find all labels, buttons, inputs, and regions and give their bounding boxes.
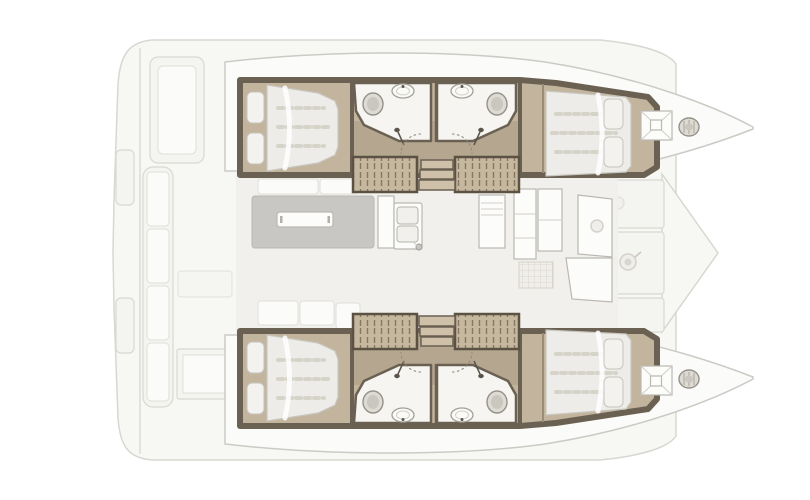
sliding-door-panel: [566, 258, 612, 302]
bench-cushion: [147, 343, 169, 401]
saloon-table: [252, 196, 374, 248]
saloon-bench-cushion: [258, 179, 318, 194]
table-leaf-latch: [328, 216, 331, 223]
saloon-sofa-cushion: [300, 301, 334, 325]
lower-hull-interior: [240, 314, 699, 426]
saloon-sofa-cushion: [258, 301, 298, 325]
catamaran-floor-plan: [0, 0, 810, 500]
transom-step: [116, 150, 134, 205]
entry-door-mat: [519, 262, 553, 288]
aft-storage-lid: [158, 66, 196, 154]
saloon: [236, 172, 618, 334]
door-handle-icon: [591, 220, 603, 232]
transom-step: [116, 298, 134, 353]
table-leaf-latch: [280, 216, 283, 223]
deck-hatch-lid: [183, 355, 227, 393]
bench-cushion: [147, 286, 169, 340]
bench-cushion: [147, 172, 169, 226]
sink-basin: [397, 207, 418, 224]
galley-column: [514, 189, 536, 259]
sink-basin: [397, 226, 418, 242]
cockpit-side-panel: [178, 271, 232, 297]
bench-cushion: [147, 229, 169, 283]
floor-plan-canvas: [0, 0, 810, 500]
upper-hull-interior: [240, 80, 699, 192]
galley-counter-end: [378, 196, 394, 248]
table-top: [277, 212, 333, 227]
